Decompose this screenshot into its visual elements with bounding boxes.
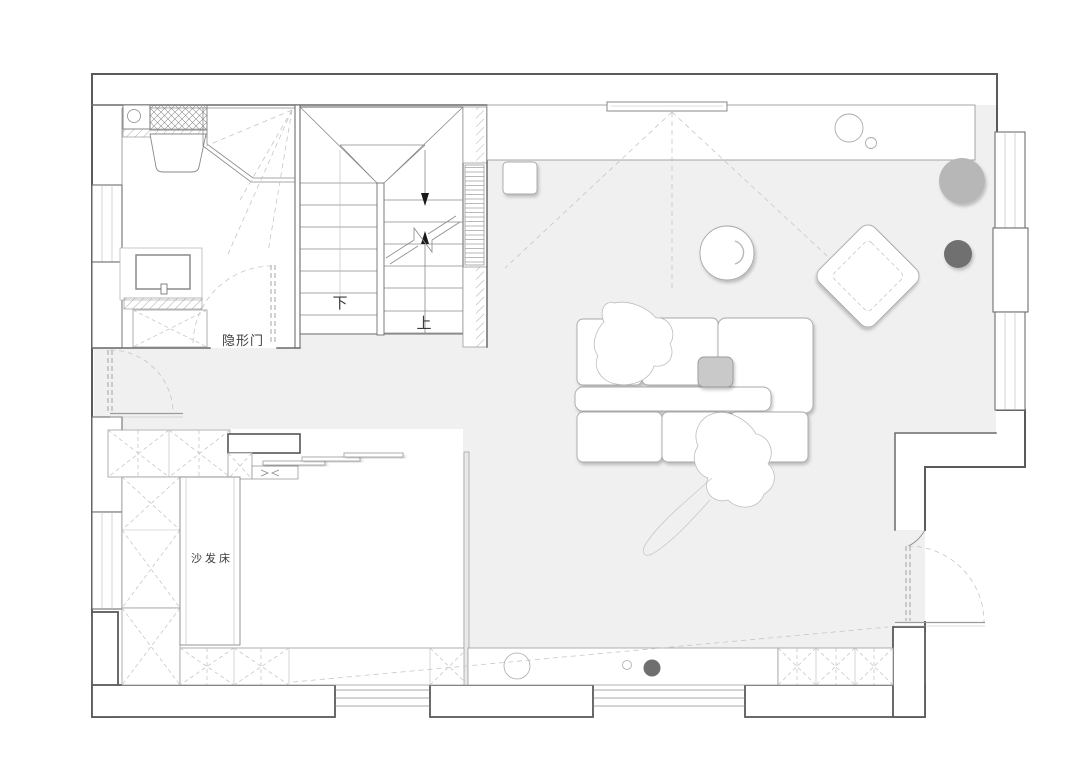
sofa-bed-label: 沙发床 — [191, 551, 233, 565]
sofa-tray — [698, 357, 733, 387]
hidden-door-label: 隐形门 — [222, 334, 264, 349]
shelf-drawer — [252, 466, 298, 479]
right-cabinet-box — [778, 648, 893, 685]
right-wall-details — [993, 132, 1028, 410]
wall-entry-inner — [895, 433, 996, 530]
closet-column-box — [122, 477, 180, 608]
bottom-window-left — [335, 690, 430, 706]
shower-bench-hatched — [150, 105, 207, 130]
partition-slat-screen — [465, 165, 484, 265]
stairs-up-label: 上 — [416, 314, 431, 332]
side-table-top — [700, 226, 754, 280]
shelf-unit — [252, 453, 403, 479]
bathroom-right-wall — [295, 105, 300, 348]
toilet — [150, 134, 206, 172]
left-window-lower — [92, 512, 122, 609]
stair-center-wall — [377, 183, 384, 335]
console-decor-large — [835, 114, 863, 142]
bench-decor-small — [623, 661, 632, 670]
wardrobe-top-band — [108, 430, 230, 477]
shower-glass-inner — [207, 107, 295, 178]
vanity — [120, 248, 202, 300]
console-cabinet — [487, 105, 975, 160]
bottom-window-right — [593, 690, 745, 706]
pouf-dark — [944, 240, 972, 268]
bench-decor-dark — [644, 660, 661, 677]
bottom-right-cabinets — [778, 648, 893, 685]
partition-top-hatch — [476, 107, 484, 163]
floor-plan-drawing: 隐形门 下 上 — [0, 0, 1080, 772]
wall-chunk-entry-step — [893, 627, 925, 717]
vanity-faucet — [161, 284, 167, 294]
tv — [607, 102, 727, 111]
partition-bottom-hatch — [476, 267, 484, 347]
floating-shelf — [263, 461, 325, 465]
left-pillar-upper — [92, 262, 122, 348]
floating-shelf — [344, 453, 403, 457]
console-decor-small — [866, 138, 877, 149]
floor-plan-page: 隐形门 下 上 — [0, 0, 1080, 772]
shower-glass-outer — [203, 107, 295, 182]
floating-shelf — [302, 457, 360, 461]
pouf-light — [939, 158, 985, 204]
wall-chunk-bottom-left — [92, 685, 335, 717]
staircase: 下 上 — [300, 107, 463, 335]
round-side-table — [700, 226, 754, 280]
hidden-door-leaf — [271, 265, 275, 345]
wall-chunk-bottom-mid — [430, 685, 593, 717]
floor-entry-doorway — [895, 530, 925, 622]
stairs-down-label: 下 — [332, 294, 347, 312]
washer-box — [123, 105, 150, 129]
bench-decor-circle — [504, 653, 530, 679]
right-window-upper — [995, 132, 1025, 228]
vanity-wall-hatch — [124, 298, 202, 309]
right-window-lower — [995, 312, 1025, 410]
closet-column — [122, 477, 180, 685]
sofa-module — [577, 412, 662, 462]
desk — [228, 434, 300, 453]
bath-cabinet — [133, 310, 207, 347]
wall-right-stepped — [925, 410, 1025, 631]
left-window-upper — [92, 185, 122, 262]
corner-shower — [203, 107, 295, 254]
desk-side-cabinet — [228, 453, 252, 479]
right-pillar — [993, 228, 1028, 312]
sofa-bed: 沙发床 — [180, 477, 240, 645]
sofa-bench-back — [575, 387, 771, 411]
study-room: 沙发床 — [108, 430, 469, 685]
ottoman — [503, 162, 537, 194]
stair-living-partition-wall — [463, 107, 487, 347]
